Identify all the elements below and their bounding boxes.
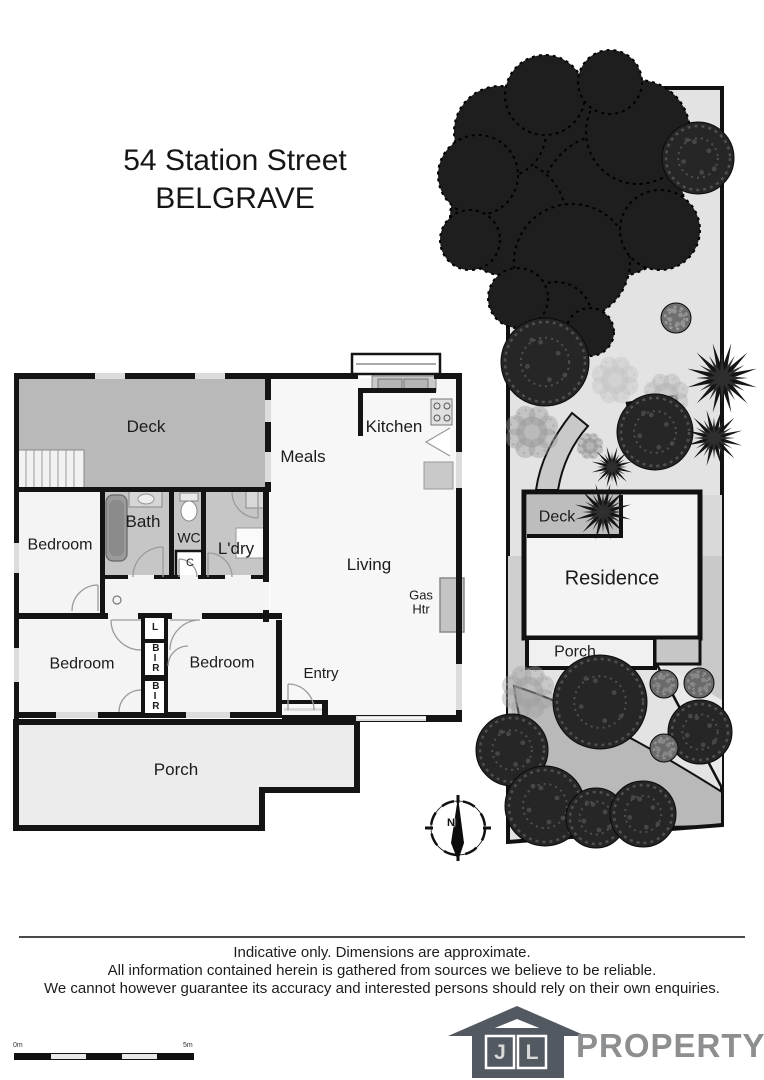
site-label-porch: Porch: [554, 645, 596, 662]
room-label-entry: Entry: [303, 666, 338, 682]
room-label-deck: Deck: [127, 418, 166, 436]
disclaimer-line-2: All information contained herein is gath…: [0, 962, 764, 980]
room-label-bedroom-left: Bedroom: [28, 538, 93, 555]
room-label-bedroom-s: Bedroom: [190, 656, 255, 673]
disclaimer-line-1: Indicative only. Dimensions are approxim…: [0, 944, 764, 962]
room-label-porch: Porch: [154, 761, 198, 779]
page-title: 54 Station Street BELGRAVE: [70, 142, 400, 217]
address-line: 54 Station Street: [70, 142, 400, 180]
room-label-wc: WC: [177, 531, 200, 546]
logo-letter-l: L: [526, 1041, 539, 1065]
site-plan-group: [438, 50, 757, 848]
label-linen: L: [152, 623, 158, 634]
fridge-space: [424, 462, 453, 489]
room-label-laundry: L'dry: [218, 540, 254, 558]
footer-divider: [19, 936, 745, 938]
room-label-kitchen: Kitchen: [366, 418, 423, 436]
suburb-line: BELGRAVE: [70, 180, 400, 218]
scale-bar: [14, 1053, 194, 1060]
label-gas-heater: Gas Htr: [409, 588, 433, 615]
scale-end-label: 5m: [183, 1042, 193, 1049]
scale-start-label: 0m: [13, 1042, 23, 1049]
room-label-cupboard: C: [186, 558, 194, 570]
site-label-deck: Deck: [539, 510, 575, 527]
logo-letter-j: J: [494, 1041, 506, 1065]
logo-brand-name: PROPERTY: [576, 1027, 764, 1065]
compass-icon: [425, 795, 491, 861]
disclaimer-line-3: We cannot however guarantee its accuracy…: [0, 980, 764, 998]
label-robe-top: BIR: [152, 644, 158, 674]
disclaimer-block: Indicative only. Dimensions are approxim…: [0, 944, 764, 998]
room-label-bath: Bath: [126, 513, 161, 531]
floorplan-page: 54 Station Street BELGRAVE Deck Meals Ki…: [0, 0, 764, 1080]
room-label-living: Living: [347, 556, 391, 574]
stove-icon: [431, 399, 452, 425]
site-label-residence: Residence: [565, 569, 660, 590]
compass-north-label: N: [447, 817, 455, 829]
toilet-icon: [180, 493, 198, 501]
label-robe-bottom: BIR: [152, 682, 158, 712]
room-label-bedroom-sw: Bedroom: [50, 657, 115, 674]
room-label-meals: Meals: [280, 448, 325, 466]
